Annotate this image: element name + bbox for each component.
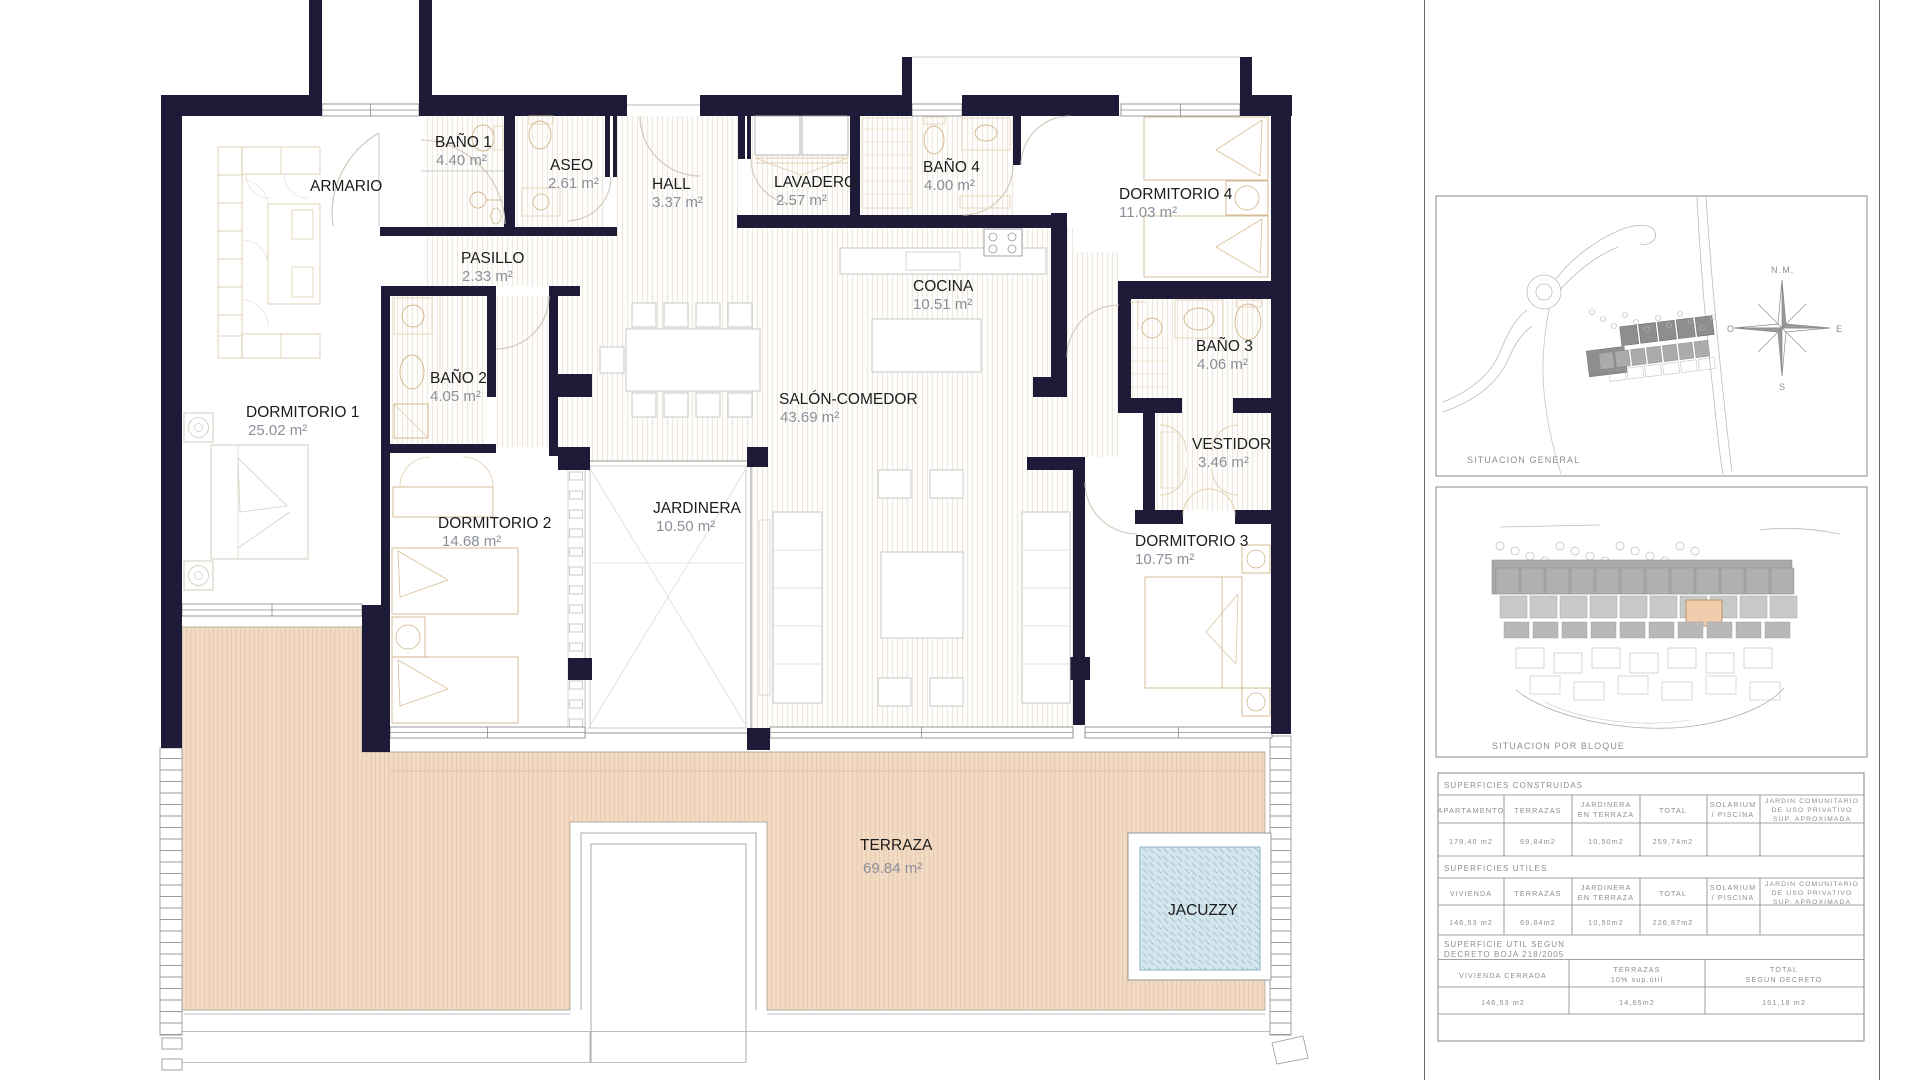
svg-text:VIVIENDA: VIVIENDA	[1450, 889, 1492, 898]
svg-text:SUP. APROXIMADA: SUP. APROXIMADA	[1773, 816, 1851, 823]
svg-text:TOTAL: TOTAL	[1659, 806, 1687, 815]
svg-text:DORMITORIO 2: DORMITORIO 2	[438, 515, 551, 532]
svg-text:14,65m2: 14,65m2	[1619, 998, 1655, 1007]
svg-text:226,87m2: 226,87m2	[1653, 918, 1694, 927]
svg-text:146,53 m2: 146,53 m2	[1449, 918, 1493, 927]
svg-text:10,50m2: 10,50m2	[1588, 837, 1624, 846]
svg-text:/ PISCINA: / PISCINA	[1712, 810, 1755, 819]
svg-text:146,53 m2: 146,53 m2	[1481, 998, 1525, 1007]
svg-text:3.46 m²: 3.46 m²	[1198, 454, 1249, 471]
svg-text:N.M.: N.M.	[1771, 265, 1794, 275]
svg-text:LAVADERO: LAVADERO	[774, 174, 856, 191]
svg-text:10.51 m²: 10.51 m²	[913, 296, 972, 313]
svg-text:DORMITORIO 1: DORMITORIO 1	[246, 404, 359, 421]
svg-text:EN TERRAZA: EN TERRAZA	[1578, 810, 1634, 819]
svg-text:SITUACION POR BLOQUE: SITUACION POR BLOQUE	[1492, 741, 1625, 751]
svg-text:69,84m2: 69,84m2	[1520, 837, 1556, 846]
svg-text:DORMITORIO 3: DORMITORIO 3	[1135, 533, 1248, 550]
svg-text:SOLARIUM: SOLARIUM	[1710, 800, 1756, 809]
svg-text:10.75 m²: 10.75 m²	[1135, 551, 1194, 568]
svg-text:JARDINERA: JARDINERA	[1581, 883, 1632, 892]
svg-text:DECRETO BOJA 218/2005: DECRETO BOJA 218/2005	[1444, 950, 1564, 959]
svg-text:SEGUN DECRETO: SEGUN DECRETO	[1746, 975, 1823, 984]
svg-text:25.02 m²: 25.02 m²	[248, 422, 307, 439]
svg-text:JARDIN COMUNITARIO: JARDIN COMUNITARIO	[1765, 881, 1859, 888]
svg-text:4.40 m²: 4.40 m²	[436, 152, 487, 169]
svg-text:4.00 m²: 4.00 m²	[924, 177, 975, 194]
svg-text:ARMARIO: ARMARIO	[310, 178, 382, 195]
svg-text:EN TERRAZA: EN TERRAZA	[1578, 893, 1634, 902]
svg-text:JARDINERA: JARDINERA	[653, 500, 742, 517]
svg-text:4.06 m²: 4.06 m²	[1197, 356, 1248, 373]
svg-text:14.68 m²: 14.68 m²	[442, 533, 501, 550]
svg-text:DORMITORIO 4: DORMITORIO 4	[1119, 186, 1233, 203]
svg-text:SUP. APROXIMADA: SUP. APROXIMADA	[1773, 899, 1851, 906]
svg-text:4.05 m²: 4.05 m²	[430, 388, 481, 405]
svg-text:11.03 m²: 11.03 m²	[1119, 204, 1177, 221]
svg-text:SOLARIUM: SOLARIUM	[1710, 883, 1756, 892]
svg-text:VESTIDOR: VESTIDOR	[1192, 436, 1271, 453]
svg-text:10.50 m²: 10.50 m²	[656, 518, 715, 535]
svg-text:PASILLO: PASILLO	[461, 250, 524, 267]
svg-text:TOTAL: TOTAL	[1659, 889, 1687, 898]
svg-text:JARDINERA: JARDINERA	[1581, 800, 1632, 809]
svg-text:SUPERFICIE UTIL SEGUN: SUPERFICIE UTIL SEGUN	[1444, 940, 1565, 949]
svg-text:DE USO PRIVATIVO: DE USO PRIVATIVO	[1772, 890, 1853, 897]
svg-text:HALL: HALL	[652, 176, 691, 193]
svg-text:2.33 m²: 2.33 m²	[462, 268, 513, 285]
svg-text:3.37 m²: 3.37 m²	[652, 194, 703, 211]
svg-text:BAÑO 2: BAÑO 2	[430, 370, 487, 387]
svg-text:43.69 m²: 43.69 m²	[780, 409, 839, 426]
svg-text:2.57 m²: 2.57 m²	[776, 192, 827, 209]
svg-text:BAÑO 4: BAÑO 4	[923, 159, 980, 176]
svg-text:JARDIN COMUNITARIO: JARDIN COMUNITARIO	[1765, 798, 1859, 805]
svg-text:10% sup.útil: 10% sup.útil	[1611, 975, 1663, 984]
svg-text:JACUZZY: JACUZZY	[1168, 902, 1238, 919]
svg-text:SUPERFICIES UTILES: SUPERFICIES UTILES	[1444, 864, 1547, 873]
svg-text:/ PISCINA: / PISCINA	[1712, 893, 1755, 902]
svg-text:BAÑO 3: BAÑO 3	[1196, 338, 1253, 355]
svg-text:SUPERFICIES CONSTRUIDAS: SUPERFICIES CONSTRUIDAS	[1444, 781, 1583, 790]
svg-text:SALÓN-COMEDOR: SALÓN-COMEDOR	[779, 391, 918, 408]
svg-text:TERRAZA: TERRAZA	[860, 837, 933, 854]
svg-text:10,50m2: 10,50m2	[1588, 918, 1624, 927]
svg-text:179,40 m2: 179,40 m2	[1449, 837, 1493, 846]
svg-text:SITUACION GENERAL: SITUACION GENERAL	[1467, 455, 1580, 465]
svg-text:S: S	[1779, 382, 1786, 392]
svg-text:APARTAMENTO: APARTAMENTO	[1438, 806, 1505, 815]
svg-text:DE USO PRIVATIVO: DE USO PRIVATIVO	[1772, 807, 1853, 814]
svg-text:TERRAZAS: TERRAZAS	[1514, 806, 1561, 815]
svg-text:2.61 m²: 2.61 m²	[548, 175, 599, 192]
svg-text:BAÑO 1: BAÑO 1	[435, 134, 492, 151]
svg-text:TOTAL: TOTAL	[1770, 965, 1798, 974]
svg-text:ASEO: ASEO	[550, 157, 593, 174]
svg-text:TERRAZAS: TERRAZAS	[1514, 889, 1561, 898]
svg-text:TERRAZAS: TERRAZAS	[1613, 965, 1660, 974]
svg-text:69,84m2: 69,84m2	[1520, 918, 1556, 927]
svg-text:COCINA: COCINA	[913, 278, 974, 295]
svg-text:259,74m2: 259,74m2	[1653, 837, 1694, 846]
svg-text:69.84 m²: 69.84 m²	[863, 860, 922, 877]
svg-text:O: O	[1727, 324, 1735, 334]
svg-text:VIVIENDA CERRADA: VIVIENDA CERRADA	[1459, 971, 1547, 980]
svg-text:161,18 m2: 161,18 m2	[1762, 998, 1806, 1007]
svg-text:E: E	[1836, 324, 1843, 334]
